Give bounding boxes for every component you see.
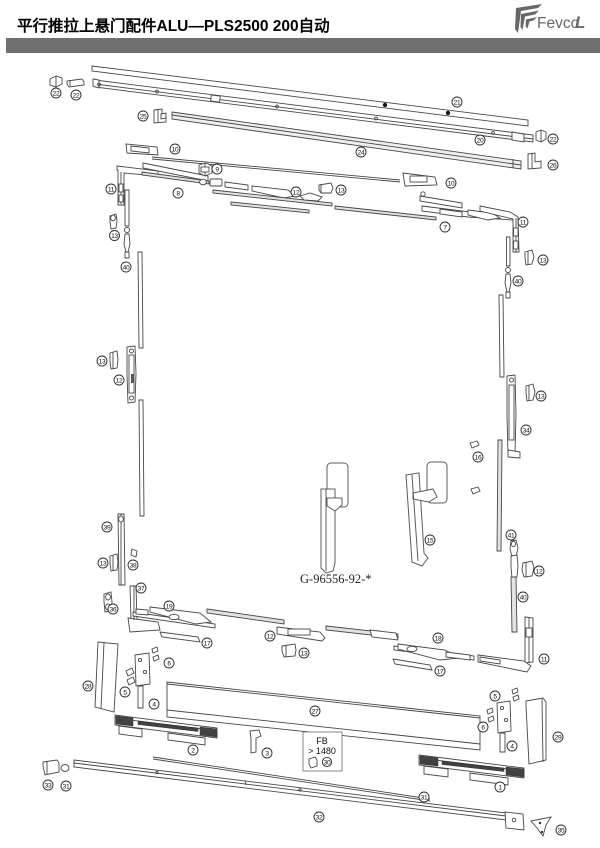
svg-text:12: 12 bbox=[116, 377, 123, 384]
svg-text:30: 30 bbox=[324, 760, 331, 767]
svg-text:27: 27 bbox=[312, 708, 319, 715]
svg-text:11: 11 bbox=[108, 186, 115, 193]
svg-text:16: 16 bbox=[475, 454, 482, 461]
svg-text:12: 12 bbox=[267, 633, 274, 640]
svg-text:31: 31 bbox=[63, 783, 70, 790]
svg-text:22: 22 bbox=[550, 136, 557, 143]
svg-text:37: 37 bbox=[138, 585, 145, 592]
svg-text:29: 29 bbox=[555, 734, 562, 741]
svg-text:12: 12 bbox=[536, 568, 543, 575]
svg-text:26: 26 bbox=[550, 162, 557, 169]
svg-text:13: 13 bbox=[99, 358, 106, 365]
svg-text:Fevco: Fevco bbox=[537, 15, 579, 32]
svg-text:36: 36 bbox=[110, 606, 117, 613]
svg-text:L: L bbox=[575, 13, 585, 32]
svg-text:22: 22 bbox=[53, 90, 60, 97]
svg-text:18: 18 bbox=[435, 635, 442, 642]
svg-text:22: 22 bbox=[73, 92, 80, 99]
svg-text:31: 31 bbox=[421, 794, 428, 801]
svg-text:21: 21 bbox=[454, 99, 461, 106]
svg-text:> 1480: > 1480 bbox=[308, 746, 336, 756]
svg-text:10: 10 bbox=[172, 146, 179, 153]
svg-text:10: 10 bbox=[448, 180, 455, 187]
svg-text:11: 11 bbox=[520, 219, 527, 226]
svg-text:34: 34 bbox=[523, 427, 530, 434]
svg-text:13: 13 bbox=[338, 187, 345, 194]
svg-text:G-96556-92-*: G-96556-92-* bbox=[300, 572, 372, 586]
svg-text:33: 33 bbox=[45, 782, 52, 789]
svg-text:25: 25 bbox=[140, 113, 147, 120]
svg-text:平行推拉上悬门配件ALU—PLS2500 200自动: 平行推拉上悬门配件ALU—PLS2500 200自动 bbox=[17, 16, 330, 35]
svg-text:41: 41 bbox=[508, 532, 515, 539]
svg-text:13: 13 bbox=[540, 257, 547, 264]
svg-text:24: 24 bbox=[358, 149, 365, 156]
svg-text:13: 13 bbox=[538, 393, 545, 400]
svg-text:35: 35 bbox=[558, 827, 565, 834]
svg-text:38: 38 bbox=[130, 562, 137, 569]
svg-text:17: 17 bbox=[204, 640, 211, 647]
svg-text:32: 32 bbox=[316, 814, 323, 821]
svg-text:20: 20 bbox=[477, 137, 484, 144]
svg-text:13: 13 bbox=[111, 233, 118, 240]
svg-text:40: 40 bbox=[123, 264, 130, 271]
svg-text:28: 28 bbox=[85, 683, 92, 690]
svg-text:13: 13 bbox=[301, 650, 308, 657]
svg-text:19: 19 bbox=[166, 603, 173, 610]
svg-text:39: 39 bbox=[104, 524, 111, 531]
svg-text:13: 13 bbox=[100, 560, 107, 567]
svg-text:11: 11 bbox=[541, 656, 548, 663]
svg-text:40: 40 bbox=[515, 278, 522, 285]
svg-text:40: 40 bbox=[520, 594, 527, 601]
svg-text:FB: FB bbox=[316, 736, 328, 746]
svg-text:15: 15 bbox=[427, 537, 434, 544]
svg-text:17: 17 bbox=[437, 668, 444, 675]
svg-text:12: 12 bbox=[293, 189, 300, 196]
